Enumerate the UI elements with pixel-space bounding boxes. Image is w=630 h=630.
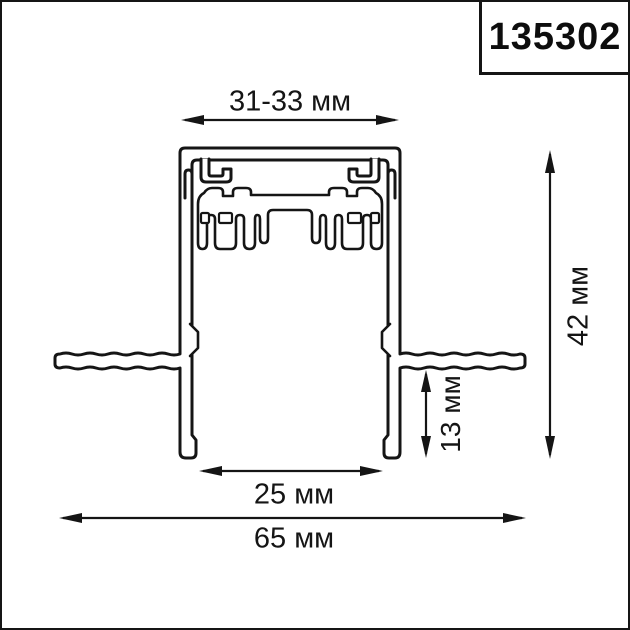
dimension-label-flange-depth: 13 мм [437, 375, 465, 452]
dimension-arrow-height [545, 150, 555, 459]
right-wall-step [382, 324, 390, 356]
dimension-label-opening: 25 мм [254, 481, 334, 510]
article-number-box: 135302 [479, 2, 628, 75]
dimension-arrow-overall-width [59, 513, 526, 523]
right-corner-fin [388, 170, 395, 198]
left-wall-step [190, 324, 198, 356]
left-hook [201, 159, 231, 182]
clip-window [348, 213, 361, 223]
dimension-arrows [59, 115, 555, 523]
dimension-label-top-width: 31-33 мм [229, 88, 351, 117]
technical-drawing: 31-33 мм 42 мм 13 мм 25 мм 65 мм 135302 [0, 0, 630, 630]
dimension-label-height: 42 мм [565, 266, 594, 346]
dimension-label-overall-width: 65 мм [254, 525, 334, 554]
insert-clip-windows [201, 213, 379, 223]
right-hook [349, 159, 379, 182]
dimension-arrow-opening [199, 466, 383, 476]
dimension-arrow-flange-depth [421, 370, 431, 458]
left-corner-fin [185, 170, 192, 198]
article-number: 135302 [489, 16, 622, 59]
clip-window [219, 213, 232, 223]
clip-window [201, 213, 209, 223]
clip-window [371, 213, 379, 223]
